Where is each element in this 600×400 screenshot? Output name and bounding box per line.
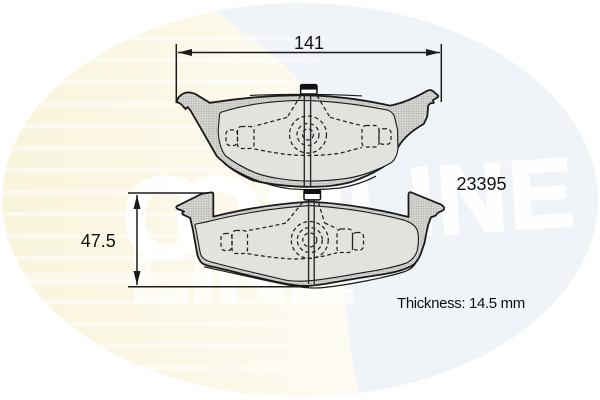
svg-text:47.5: 47.5 <box>81 231 116 251</box>
svg-text:Thickness: 14.5 mm: Thickness: 14.5 mm <box>397 295 525 312</box>
svg-text:23395: 23395 <box>457 174 507 194</box>
svg-text:141: 141 <box>294 33 324 53</box>
